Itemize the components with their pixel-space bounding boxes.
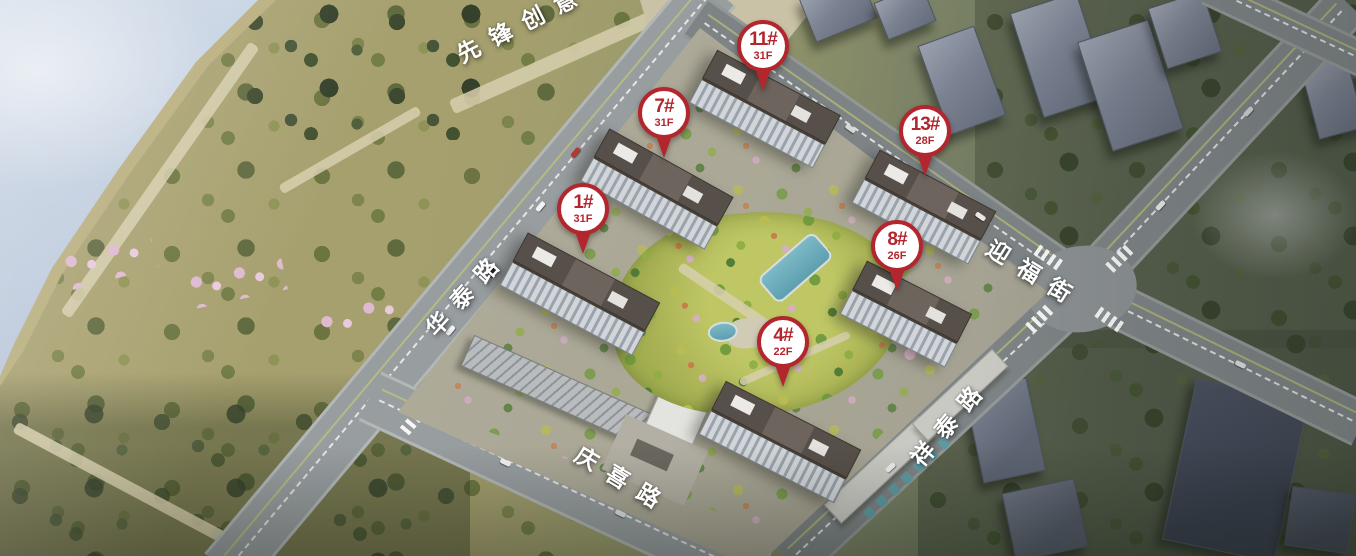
marker-building-number: 8# <box>887 230 906 249</box>
building-marker-4[interactable]: 4# 22F <box>757 316 809 387</box>
marker-building-number: 11# <box>749 30 777 49</box>
marker-building-number: 1# <box>573 193 592 212</box>
marker-building-number: 7# <box>654 97 673 116</box>
building-marker-13[interactable]: 13# 28F <box>899 105 951 176</box>
marker-floor-count: 31F <box>655 118 674 129</box>
marker-bubble: 4# 22F <box>757 316 809 368</box>
building-marker-8[interactable]: 8# 26F <box>871 220 923 291</box>
marker-bubble: 1# 31F <box>557 183 609 235</box>
building-marker-7[interactable]: 7# 31F <box>638 87 690 158</box>
marker-bubble: 8# 26F <box>871 220 923 272</box>
marker-bubble: 13# 28F <box>899 105 951 157</box>
marker-building-number: 13# <box>911 115 940 134</box>
building-marker-11[interactable]: 11# 31F <box>737 20 789 91</box>
marker-floor-count: 31F <box>574 214 593 225</box>
marker-building-number: 4# <box>773 326 792 345</box>
building-marker-1[interactable]: 1# 31F <box>557 183 609 254</box>
marker-bubble: 11# 31F <box>737 20 789 72</box>
city-building <box>1284 486 1356 554</box>
marker-bubble: 7# 31F <box>638 87 690 139</box>
aerial-masterplan: 先锋创意 华泰路 庆喜路 祥泰路 迎福街 11# 31F 7# 31F 13# … <box>0 0 1356 556</box>
marker-floor-count: 26F <box>888 251 907 262</box>
marker-floor-count: 22F <box>774 347 793 358</box>
city-building <box>1002 478 1089 556</box>
marker-floor-count: 28F <box>916 136 935 147</box>
park-grove <box>235 0 485 140</box>
haze <box>1190 150 1356 280</box>
marker-floor-count: 31F <box>754 51 773 62</box>
